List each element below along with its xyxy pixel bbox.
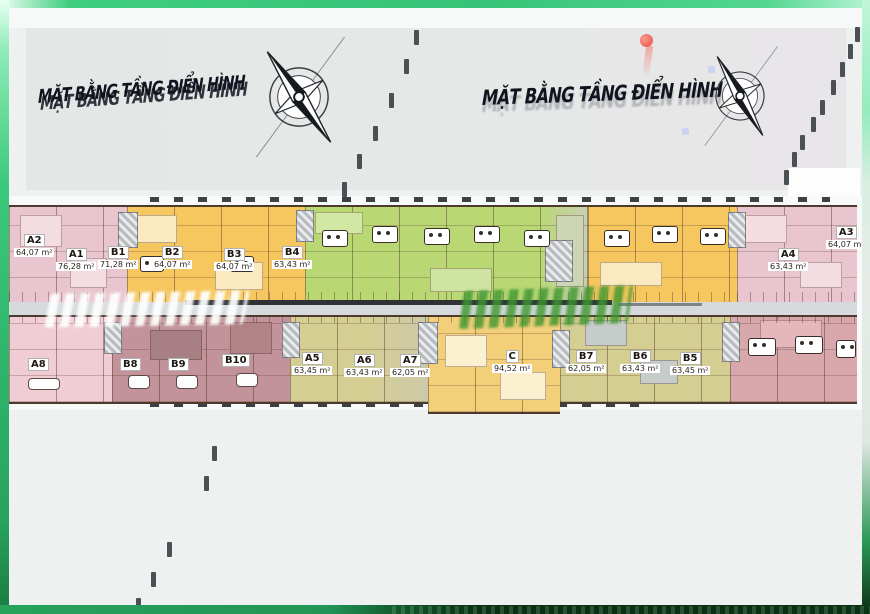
unit-area: 64,07 m² (214, 262, 254, 271)
unit-code: A2 (24, 234, 45, 247)
unit-block-pink-bottom-left (9, 315, 112, 404)
unit-area: 63,43 m² (344, 368, 384, 377)
unit-area: 62,05 m² (566, 364, 606, 373)
unit-chip-a8: A8 (28, 358, 49, 371)
dimension-tick (373, 126, 378, 141)
unit-chip-b9: B9 (168, 358, 189, 371)
bed-icon (652, 226, 678, 243)
unit-area: 63,43 m² (768, 262, 808, 271)
bed-icon (836, 340, 856, 358)
unit-area: 94,52 m² (492, 364, 532, 373)
stair-core (118, 212, 138, 248)
unit-area: 64,07 m² (826, 240, 866, 249)
floorplan-poster: MẶT BẰNG TẦNG ĐIỂN HÌNH MẶT BẰNG TẦNG ĐI… (0, 0, 870, 614)
unit-code: A5 (302, 352, 323, 365)
unit-code: B8 (120, 358, 141, 371)
dimension-tick (792, 152, 797, 167)
unit-chip-b2: B2 64,07 m² (152, 246, 192, 269)
unit-chip-a1: A1 76,28 m² (56, 248, 96, 271)
bed-icon (322, 230, 348, 247)
dimension-tick (404, 59, 409, 74)
compass-rose-icon (250, 34, 348, 160)
dimension-tick (820, 100, 825, 115)
unit-code: A4 (778, 248, 799, 261)
dimension-tick (357, 154, 362, 169)
stair-core (104, 322, 122, 354)
dimension-tick (389, 93, 394, 108)
unit-chip-a7: A7 62,05 m² (390, 354, 430, 377)
unit-code: B2 (162, 246, 183, 259)
stair-core (722, 322, 740, 362)
north-marker-icon (640, 34, 653, 47)
unit-code: A3 (836, 226, 857, 239)
unit-chip-a6: A6 63,43 m² (344, 354, 384, 377)
unit-code: B10 (222, 354, 250, 367)
bed-icon (795, 336, 823, 354)
dimension-tick (831, 80, 836, 95)
unit-chip-b6: B6 63,43 m² (620, 350, 660, 373)
corridor-wall (618, 303, 702, 306)
bed-icon (700, 228, 726, 245)
bed-icon (748, 338, 776, 356)
unit-chip-a4: A4 63,43 m² (768, 248, 808, 271)
room-patch (500, 372, 546, 400)
dimension-strip-top (150, 197, 830, 202)
dimension-tick (167, 542, 172, 557)
stair-core (728, 212, 746, 248)
unit-chip-b7: B7 62,05 m² (566, 350, 606, 373)
unit-code: B1 (108, 246, 129, 259)
unit-code: B5 (680, 352, 701, 365)
unit-chip-b10: B10 (222, 354, 250, 367)
unit-code: C (506, 350, 519, 363)
watermark-center (459, 285, 633, 329)
unit-code: A8 (28, 358, 49, 371)
unit-code: B9 (168, 358, 189, 371)
bed-icon (524, 230, 550, 247)
unit-code: B7 (576, 350, 597, 363)
unit-chip-a3: A3 64,07 m² (826, 226, 866, 249)
watermark-left (44, 290, 249, 327)
dimension-tick (212, 446, 217, 461)
frame-right (862, 0, 870, 614)
dimension-tick (784, 170, 789, 185)
dimension-tick (800, 135, 805, 150)
stair-core (296, 210, 314, 242)
decor-patch (788, 168, 860, 196)
room-patch (135, 215, 177, 243)
room-patch (445, 335, 487, 367)
dimension-tick (151, 572, 156, 587)
sofa-icon (128, 375, 150, 389)
unit-chip-c: C 94,52 m² (492, 350, 532, 373)
dimension-tick (204, 476, 209, 491)
unit-chip-b1: B1 71,28 m² (98, 246, 138, 269)
unit-area: 63,45 m² (292, 366, 332, 375)
unit-area: 76,28 m² (56, 262, 96, 271)
unit-chip-b8: B8 (120, 358, 141, 371)
unit-code: B4 (282, 246, 303, 259)
sofa-icon (176, 375, 198, 389)
unit-chip-b4: B4 63,43 m² (272, 246, 312, 269)
unit-chip-b5: B5 63,45 m² (670, 352, 710, 375)
room-patch (150, 330, 202, 360)
unit-code: A1 (66, 248, 87, 261)
dimension-tick (414, 30, 419, 45)
unit-area: 64,07 m² (14, 248, 54, 257)
dimension-tick (848, 44, 853, 59)
unit-area: 62,05 m² (390, 368, 430, 377)
unit-code: A6 (354, 354, 375, 367)
unit-code: B3 (224, 248, 245, 261)
unit-area: 63,43 m² (620, 364, 660, 373)
room-patch (430, 268, 492, 292)
unit-code: B6 (630, 350, 651, 363)
unit-chip-a5: A5 63,45 m² (292, 352, 332, 375)
room-patch (230, 322, 272, 354)
dimension-tick (342, 182, 347, 197)
dimension-tick (855, 27, 860, 42)
unit-area: 63,43 m² (272, 260, 312, 269)
frame-top (0, 0, 870, 8)
unit-area: 63,45 m² (670, 366, 710, 375)
bed-icon (424, 228, 450, 245)
decor-dot (682, 128, 689, 135)
unit-chip-a2: A2 64,07 m² (14, 234, 54, 257)
sofa-icon (236, 373, 258, 387)
frame-left (0, 0, 9, 614)
room-patch (745, 215, 787, 243)
unit-code: A7 (400, 354, 421, 367)
top-strip (9, 8, 862, 28)
unit-area: 71,28 m² (98, 260, 138, 269)
dimension-tick (840, 62, 845, 77)
frame-bottom-dashes (392, 606, 870, 614)
stair-core (545, 240, 573, 282)
unit-area: 64,07 m² (152, 260, 192, 269)
bed-icon (372, 226, 398, 243)
unit-chip-b3: B3 64,07 m² (214, 248, 254, 271)
room-patch (600, 262, 662, 286)
sofa-icon (28, 378, 60, 390)
bed-icon (604, 230, 630, 247)
compass-rose-icon (700, 42, 780, 150)
bed-icon (474, 226, 500, 243)
dimension-tick (811, 117, 816, 132)
